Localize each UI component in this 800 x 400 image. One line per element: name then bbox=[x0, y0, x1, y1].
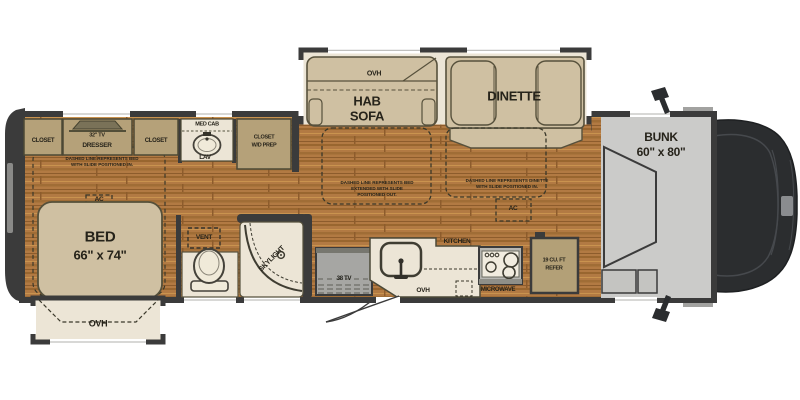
bunk-label: BUNK bbox=[644, 131, 677, 143]
rear-window bbox=[7, 163, 13, 233]
closet-wd-label-2: W/D PREP bbox=[252, 143, 277, 149]
closet-rear-label: CLOSET bbox=[32, 138, 55, 144]
sofa-ovh-label: OVH bbox=[367, 71, 381, 78]
closet-rear bbox=[24, 119, 62, 155]
dresser-label: DRESSER bbox=[82, 143, 111, 150]
bunk-step-1 bbox=[602, 270, 636, 293]
ac-bedroom-label: AC bbox=[95, 197, 104, 204]
tv38-label: 38 TV bbox=[337, 276, 352, 282]
bed-size-label: 66" x 74" bbox=[73, 249, 126, 262]
hab-sofa-label-1: HAB bbox=[353, 95, 380, 108]
front-plate bbox=[781, 196, 793, 216]
bunk-size-label: 60" x 80" bbox=[637, 146, 686, 158]
toilet-bowl bbox=[194, 249, 224, 283]
microwave-label: MICROWAVE bbox=[481, 287, 516, 293]
sink-faucet bbox=[400, 261, 403, 276]
dinette-label: DINETTE bbox=[487, 90, 541, 103]
kitchen-label: KITCHEN bbox=[444, 239, 471, 246]
tv-cabinet bbox=[316, 248, 372, 295]
sofa-note-line-2: EXTENDED WITH SLIDE bbox=[351, 187, 403, 192]
rear-cap bbox=[5, 108, 25, 303]
tv32-label: 32" TV bbox=[89, 133, 104, 139]
bed-ovh-label: OVH bbox=[89, 320, 108, 329]
sofa-note-line-1: DASHED LINE REPRESENTS BED bbox=[340, 181, 413, 186]
bed-note-line-2: WITH SLIDE POSITIONED IN. bbox=[71, 163, 133, 168]
tv-icon bbox=[73, 121, 122, 129]
dinette-note-line-2: WITH SLIDE POSITIONED IN. bbox=[476, 185, 538, 190]
bed-note-line-1: DASHED LINE REPRESENTS BED bbox=[65, 157, 138, 162]
bed-label: BED bbox=[85, 230, 116, 245]
closet-wd-label-1: CLOSET bbox=[254, 135, 275, 141]
closet-front-label: CLOSET bbox=[145, 138, 168, 144]
closet-front bbox=[134, 119, 178, 155]
kitchen-ovh-label: OVH bbox=[416, 288, 429, 295]
rv-floorplan: CLOSET 32" TV DRESSER CLOSET MED CAB LAV… bbox=[0, 0, 800, 400]
ac-living-label: AC bbox=[509, 206, 518, 213]
sofa-note-line-3: POSITIONED OUT. bbox=[357, 193, 396, 198]
truck-cab bbox=[711, 120, 797, 292]
floorplan-drawing bbox=[0, 0, 800, 400]
med-cab-label: MED CAB bbox=[195, 122, 219, 128]
dinette-note-line-1: DASHED LINE REPRESENTS DINETTE bbox=[466, 179, 549, 184]
lav-label: LAV bbox=[199, 155, 211, 162]
bunk-step-2 bbox=[638, 270, 657, 293]
lav-faucet bbox=[203, 132, 211, 136]
refer-label-2: REFER bbox=[545, 266, 562, 272]
vent-label: VENT bbox=[196, 235, 212, 242]
hab-sofa-label-2: SOFA bbox=[350, 110, 384, 123]
refer-label-1: 19 CU. FT bbox=[543, 258, 566, 264]
